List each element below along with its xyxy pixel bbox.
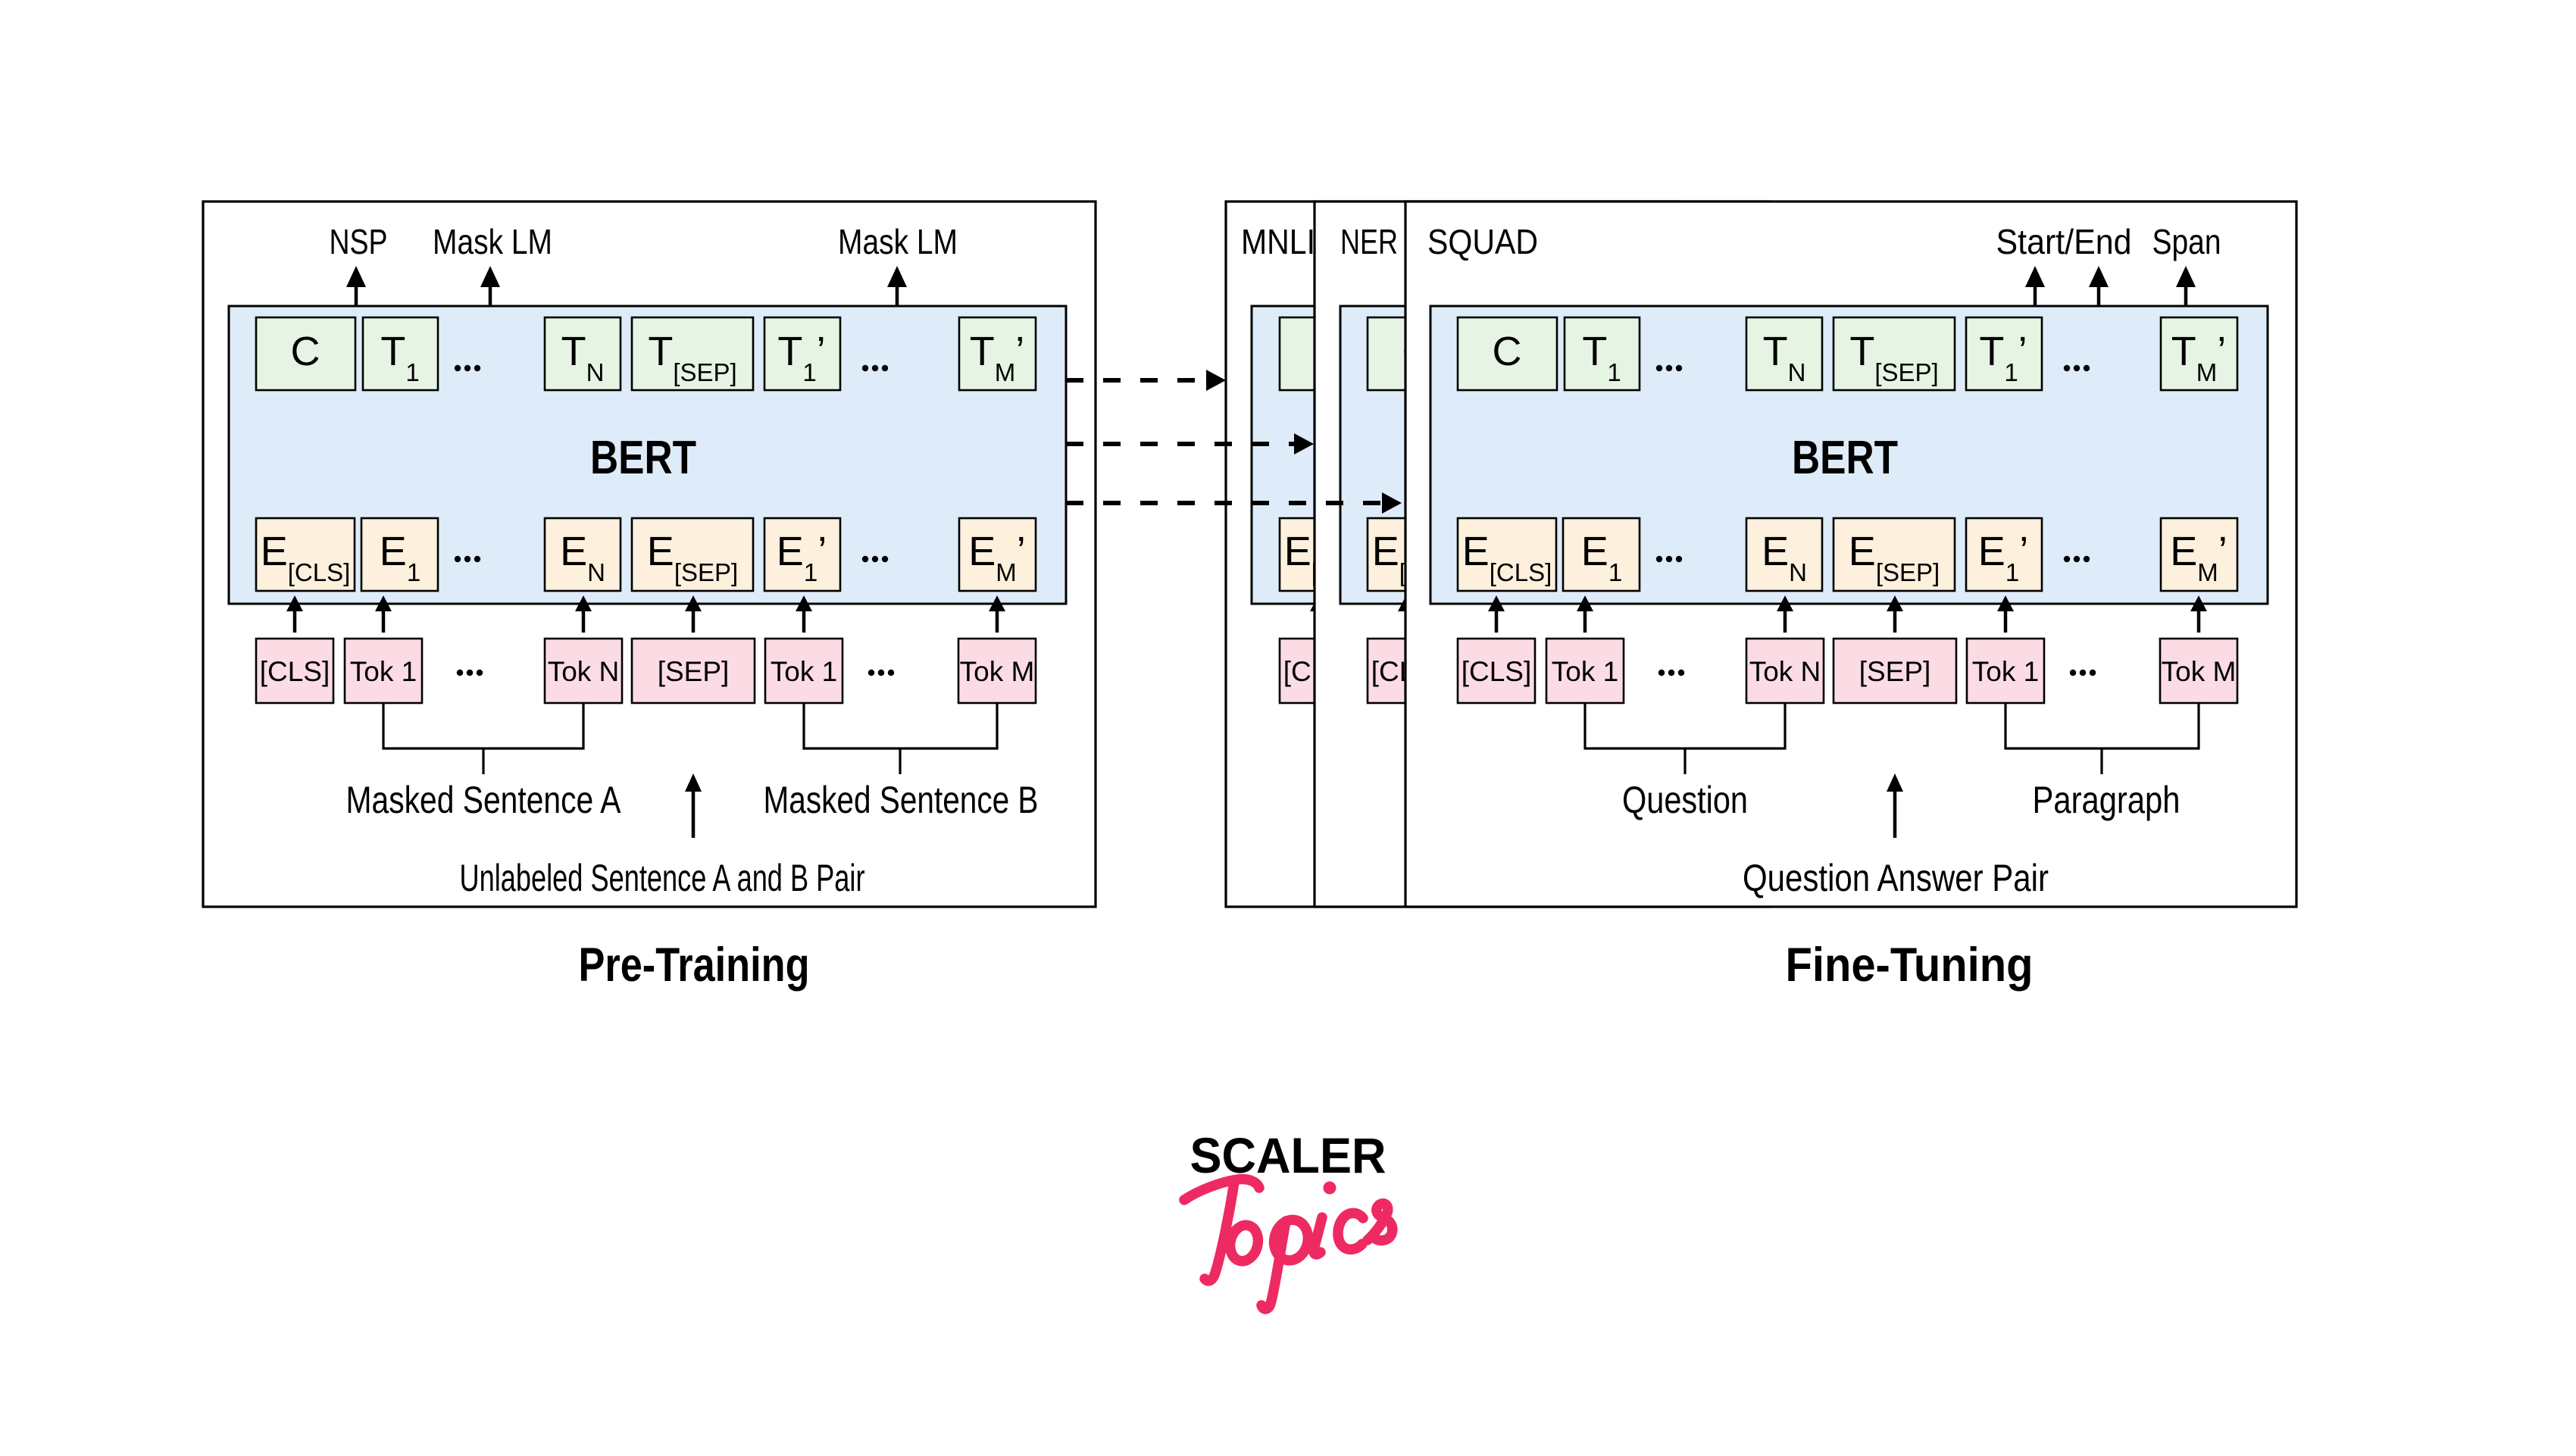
svg-text:SQUAD: SQUAD (1427, 222, 1538, 261)
svg-text:Masked Sentence B: Masked Sentence B (764, 779, 1039, 821)
svg-text:C: C (291, 329, 320, 374)
svg-text:[SEP]: [SEP] (1859, 656, 1931, 687)
svg-text:SCALER: SCALER (1190, 1127, 1386, 1183)
svg-text:Mask LM: Mask LM (433, 222, 552, 261)
svg-text:Tok 1: Tok 1 (771, 656, 837, 687)
svg-text:Fine-Tuning: Fine-Tuning (1786, 939, 2034, 992)
svg-text:Unlabeled Sentence A and B Pai: Unlabeled Sentence A and B Pair (460, 857, 865, 899)
svg-text:Tok 1: Tok 1 (350, 656, 417, 687)
svg-text:Tok N: Tok N (1749, 656, 1821, 687)
svg-text:Question Answer Pair: Question Answer Pair (1743, 857, 2049, 899)
svg-text:Tok M: Tok M (2162, 656, 2237, 687)
svg-text:Paragraph: Paragraph (2033, 779, 2181, 821)
svg-text:[SEP]: [SEP] (658, 656, 730, 687)
svg-text:[CLS]: [CLS] (1462, 656, 1532, 687)
svg-text:MNLI: MNLI (1241, 222, 1315, 261)
svg-text:Mask LM: Mask LM (838, 222, 958, 261)
svg-text:Masked Sentence A: Masked Sentence A (346, 779, 622, 821)
svg-text:Tok 1: Tok 1 (1972, 656, 2039, 687)
svg-text:Tok 1: Tok 1 (1552, 656, 1618, 687)
svg-text:Tok M: Tok M (960, 656, 1035, 687)
svg-text:Tok N: Tok N (548, 656, 620, 687)
svg-text:Start/End: Start/End (1996, 222, 2132, 261)
svg-text:Span: Span (2152, 222, 2221, 261)
svg-text:BERT: BERT (590, 432, 696, 484)
svg-text:BERT: BERT (1792, 432, 1898, 484)
svg-text:Question: Question (1622, 779, 1748, 821)
svg-text:[CLS]: [CLS] (260, 656, 330, 687)
svg-text:Pre-Training: Pre-Training (579, 939, 810, 992)
svg-text:NSP: NSP (330, 222, 388, 261)
svg-text:C: C (1493, 329, 1522, 374)
svg-text:NER: NER (1340, 222, 1398, 261)
